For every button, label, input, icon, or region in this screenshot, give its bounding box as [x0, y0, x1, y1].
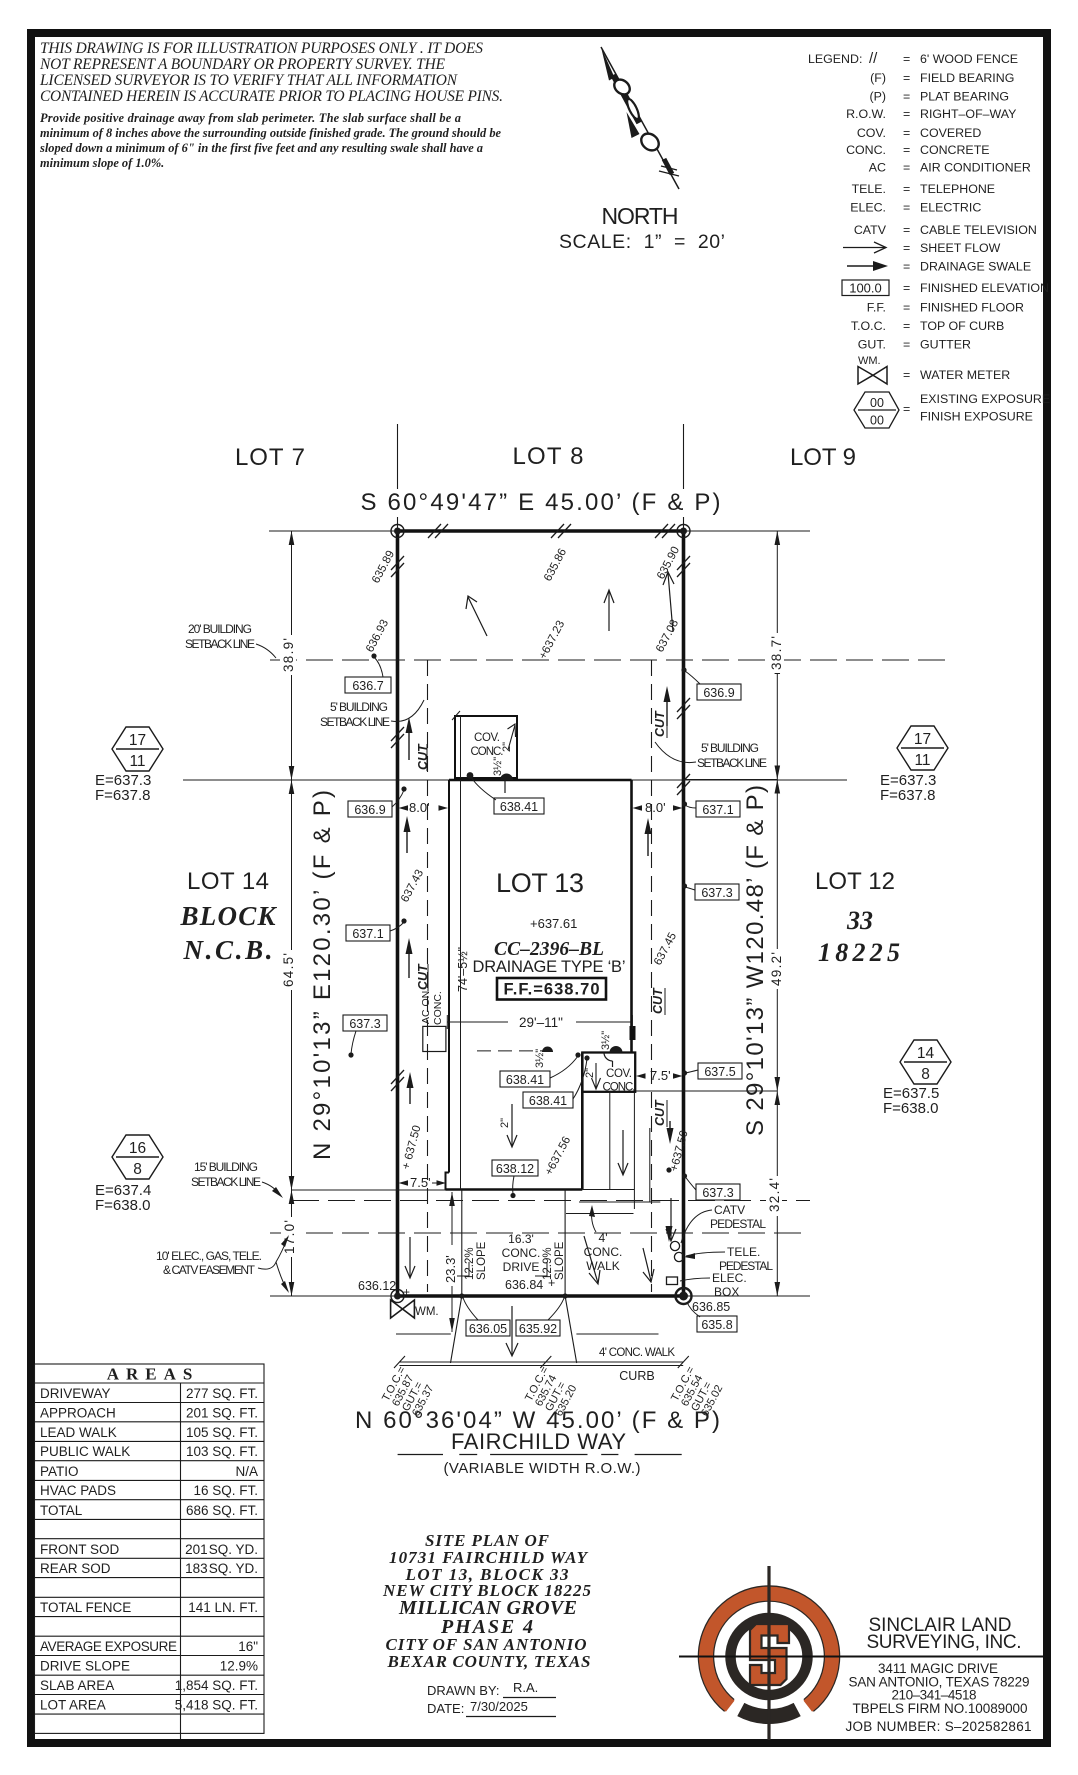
- svg-text:SETBACK LINE: SETBACK LINE: [320, 715, 390, 729]
- svg-text:DRIVEWAY: DRIVEWAY: [40, 1386, 111, 1401]
- svg-text:WM.: WM.: [415, 1306, 439, 1318]
- svg-text:CONC.: CONC.: [502, 1246, 541, 1260]
- svg-text:+637.61: +637.61: [530, 916, 577, 931]
- svg-text:1,854 SQ. FT.: 1,854 SQ. FT.: [175, 1678, 258, 1693]
- svg-text:F.F.=638.70: F.F.=638.70: [504, 981, 600, 999]
- svg-text:LOT 13: LOT 13: [496, 868, 584, 898]
- svg-text:COVERED: COVERED: [920, 126, 981, 140]
- svg-text:SLAB AREA: SLAB AREA: [40, 1678, 114, 1693]
- svg-text:=: =: [903, 319, 910, 333]
- svg-text:637.3: 637.3: [349, 1017, 380, 1031]
- svg-text:CONC.: CONC.: [432, 991, 444, 1025]
- svg-text:11: 11: [129, 753, 145, 770]
- svg-text:74'–5½": 74'–5½": [456, 947, 470, 992]
- svg-text:637.1: 637.1: [352, 927, 383, 941]
- svg-text:636.84: 636.84: [505, 1278, 543, 1292]
- svg-text:S 29°10'13” W120.48’ (F & P): S 29°10'13” W120.48’ (F & P): [742, 785, 769, 1136]
- svg-text:=: =: [903, 90, 910, 104]
- svg-text:AC ON: AC ON: [420, 991, 432, 1024]
- svg-text:00: 00: [870, 396, 884, 410]
- svg-text:=: =: [903, 260, 910, 274]
- svg-text:minimum slope of 1.0%.: minimum slope of 1.0%.: [40, 156, 164, 170]
- svg-text:16 SQ. FT.: 16 SQ. FT.: [193, 1483, 258, 1498]
- svg-text:CABLE TELEVISION: CABLE TELEVISION: [920, 223, 1037, 237]
- svg-text:CUT: CUT: [651, 987, 665, 1014]
- svg-text:277 SQ. FT.: 277 SQ. FT.: [186, 1386, 258, 1401]
- svg-text:N.C.B.: N.C.B.: [183, 935, 273, 965]
- svg-text:5' BUILDING: 5' BUILDING: [701, 741, 759, 755]
- svg-text:AC: AC: [869, 161, 886, 175]
- svg-text:& CATV EASEMENT: & CATV EASEMENT: [163, 1263, 256, 1277]
- svg-text:CONC.: CONC.: [584, 1245, 623, 1259]
- svg-text:8: 8: [921, 1066, 930, 1083]
- svg-text:=: =: [903, 161, 910, 175]
- svg-text:FINISH EXPOSURE: FINISH EXPOSURE: [920, 410, 1033, 424]
- svg-text:BLOCK: BLOCK: [180, 901, 278, 931]
- svg-text:100.0: 100.0: [849, 281, 882, 296]
- svg-text:LEGEND:: LEGEND:: [808, 52, 862, 66]
- svg-text:=: =: [903, 281, 910, 295]
- svg-text:EXISTING EXPOSURE: EXISTING EXPOSURE: [920, 392, 1050, 406]
- svg-text:T.O.C.: T.O.C.: [851, 319, 886, 333]
- svg-text:TOP OF CURB: TOP OF CURB: [920, 319, 1004, 333]
- svg-text:637.3: 637.3: [701, 886, 732, 900]
- svg-text:=: =: [903, 223, 910, 237]
- svg-text:SETBACK LINE: SETBACK LINE: [185, 637, 255, 651]
- svg-text:TOTAL: TOTAL: [40, 1503, 83, 1518]
- svg-text:636.85: 636.85: [692, 1300, 730, 1314]
- svg-text:F=637.8: F=637.8: [880, 787, 935, 804]
- svg-text:JOB NUMBER: S–202582861: JOB NUMBER: S–202582861: [846, 1719, 1032, 1734]
- svg-text:WALK: WALK: [586, 1259, 620, 1273]
- svg-text:17: 17: [129, 732, 146, 749]
- svg-text:636.05: 636.05: [469, 1322, 507, 1336]
- svg-text:F=638.0: F=638.0: [95, 1197, 150, 1214]
- svg-text:LOT 8: LOT 8: [513, 443, 584, 470]
- svg-text:GUT.: GUT.: [858, 338, 886, 352]
- svg-text:ELEC.: ELEC.: [712, 1271, 747, 1285]
- svg-text:NORTH: NORTH: [602, 203, 679, 229]
- svg-text:PUBLIC WALK: PUBLIC WALK: [40, 1444, 130, 1459]
- svg-text:COV.: COV.: [474, 732, 500, 744]
- svg-text:COV.: COV.: [857, 126, 886, 140]
- svg-text:AIR CONDITIONER: AIR CONDITIONER: [920, 161, 1031, 175]
- svg-text:ELECTRIC: ELECTRIC: [920, 201, 981, 215]
- svg-text:CATV: CATV: [854, 223, 887, 237]
- svg-text:11: 11: [914, 752, 930, 769]
- svg-text:BEXAR COUNTY, TEXAS: BEXAR COUNTY, TEXAS: [387, 1652, 591, 1671]
- svg-text:183 SQ. YD.: 183 SQ. YD.: [185, 1561, 258, 1576]
- svg-text:636.12: 636.12: [358, 1279, 396, 1293]
- svg-text:F=638.0: F=638.0: [883, 1100, 938, 1117]
- svg-text:F.F.: F.F.: [867, 301, 886, 315]
- svg-text:CURB: CURB: [619, 1369, 654, 1383]
- svg-text:FIELD BEARING: FIELD BEARING: [920, 71, 1014, 85]
- svg-text:201 SQ. FT.: 201 SQ. FT.: [186, 1405, 258, 1420]
- svg-text:=: =: [903, 201, 910, 215]
- svg-text:SHEET FLOW: SHEET FLOW: [920, 241, 1001, 255]
- svg-text:=: =: [903, 126, 910, 140]
- svg-text:8: 8: [133, 1161, 142, 1178]
- svg-text:CONC.: CONC.: [471, 746, 504, 758]
- svg-text:SCALE: 1” = 20’: SCALE: 1” = 20’: [559, 231, 725, 253]
- svg-text:638.41: 638.41: [500, 800, 538, 814]
- svg-text:S 60°49'47” E 45.00’ (F & P): S 60°49'47” E 45.00’ (F & P): [361, 489, 721, 516]
- svg-text:CUT: CUT: [653, 710, 667, 737]
- svg-text:=: =: [903, 143, 910, 157]
- svg-text:REAR SOD: REAR SOD: [40, 1561, 111, 1576]
- svg-text:(P): (P): [869, 90, 886, 104]
- svg-text:12.9%: 12.9%: [542, 1247, 554, 1280]
- svg-text:COV.: COV.: [606, 1068, 632, 1080]
- svg-text:16": 16": [238, 1639, 258, 1654]
- svg-text:2": 2": [499, 1118, 511, 1128]
- svg-text:636.7: 636.7: [352, 679, 383, 693]
- svg-text:635.8: 635.8: [701, 1318, 732, 1332]
- svg-text:SLOPE: SLOPE: [476, 1241, 488, 1280]
- svg-text:LICENSED SURVEYOR IS TO VERIFY: LICENSED SURVEYOR IS TO VERIFY THAT ALL …: [39, 72, 458, 89]
- svg-text:638.41: 638.41: [506, 1073, 544, 1087]
- svg-text:00: 00: [870, 414, 884, 428]
- svg-text:=: =: [903, 368, 910, 382]
- svg-text:DRIVE: DRIVE: [503, 1260, 540, 1274]
- svg-text:sloped down a minimum of 6" in: sloped down a minimum of 6" in the first…: [39, 141, 483, 155]
- svg-text:R.O.W.: R.O.W.: [846, 107, 886, 121]
- svg-text:15' BUILDING: 15' BUILDING: [194, 1160, 258, 1174]
- svg-text:=: =: [903, 52, 910, 66]
- svg-text:DRAINAGE TYPE ‘B’: DRAINAGE TYPE ‘B’: [473, 958, 626, 976]
- svg-text:637.3: 637.3: [702, 1186, 733, 1200]
- svg-text:FAIRCHILD WAY: FAIRCHILD WAY: [451, 1429, 626, 1454]
- svg-text:7.5': 7.5': [410, 1175, 431, 1190]
- svg-text:5' BUILDING: 5' BUILDING: [330, 700, 388, 714]
- svg-text:64.5': 64.5': [281, 953, 296, 987]
- svg-text:LOT 14: LOT 14: [187, 868, 269, 895]
- svg-text:105 SQ. FT.: 105 SQ. FT.: [186, 1425, 258, 1440]
- svg-text:SLOPE: SLOPE: [554, 1241, 566, 1280]
- svg-text:12.2%: 12.2%: [464, 1247, 476, 1280]
- svg-text:=: =: [903, 338, 910, 352]
- svg-text:636.9: 636.9: [703, 686, 734, 700]
- svg-text:103 SQ. FT.: 103 SQ. FT.: [186, 1444, 258, 1459]
- svg-text:APPROACH: APPROACH: [40, 1405, 116, 1420]
- svg-text:ELEC.: ELEC.: [850, 201, 886, 215]
- svg-text:10' ELEC., GAS, TELE.: 10' ELEC., GAS, TELE.: [156, 1249, 262, 1263]
- svg-text:32.4': 32.4': [767, 1178, 782, 1212]
- svg-text:638.12: 638.12: [496, 1162, 534, 1176]
- svg-text:NOT REPRESENT A BOUNDARY OR PR: NOT REPRESENT A BOUNDARY OR PROPERTY SUR…: [39, 56, 446, 73]
- svg-text:DRIVE SLOPE: DRIVE SLOPE: [40, 1659, 130, 1674]
- svg-text:6' WOOD FENCE: 6' WOOD FENCE: [920, 52, 1018, 66]
- svg-text:R.A.: R.A.: [513, 1680, 538, 1695]
- svg-text:WATER METER: WATER METER: [920, 368, 1010, 382]
- svg-text:=: =: [903, 301, 910, 315]
- svg-text:HVAC PADS: HVAC PADS: [40, 1483, 116, 1498]
- svg-text:Provide positive drainage away: Provide positive drainage away from slab…: [40, 111, 461, 125]
- svg-text:201 SQ. YD.: 201 SQ. YD.: [185, 1542, 258, 1557]
- svg-text:SETBACK LINE: SETBACK LINE: [191, 1175, 261, 1189]
- svg-text:23.3': 23.3': [443, 1255, 458, 1283]
- svg-text:8.0': 8.0': [645, 800, 666, 815]
- svg-text:TELE.: TELE.: [727, 1245, 760, 1259]
- svg-text:3½": 3½": [534, 1049, 546, 1068]
- svg-text:=: =: [903, 71, 910, 85]
- svg-text:CONCRETE: CONCRETE: [920, 143, 990, 157]
- svg-text:CONC.: CONC.: [603, 1082, 636, 1094]
- svg-text:CATV: CATV: [714, 1203, 745, 1217]
- svg-text:BOX: BOX: [714, 1285, 739, 1299]
- svg-text:WM.: WM.: [858, 355, 881, 367]
- svg-text:LOT 9: LOT 9: [790, 444, 856, 471]
- svg-text:FRONT SOD: FRONT SOD: [40, 1542, 120, 1557]
- svg-text:N/A: N/A: [235, 1464, 258, 1479]
- svg-text:LOT 12: LOT 12: [815, 868, 895, 895]
- svg-text:DATE:: DATE:: [427, 1701, 464, 1716]
- svg-text:4': 4': [599, 1231, 608, 1245]
- svg-text:636.9: 636.9: [354, 803, 385, 817]
- svg-text:PEDESTAL: PEDESTAL: [710, 1217, 766, 1231]
- svg-text:38.9': 38.9': [281, 638, 296, 672]
- svg-text:16: 16: [129, 1140, 146, 1157]
- svg-text:3½": 3½": [492, 757, 504, 776]
- svg-text:=: =: [903, 241, 910, 255]
- svg-text:=: =: [903, 107, 910, 121]
- svg-text:18225: 18225: [818, 938, 900, 967]
- svg-text:(F): (F): [870, 71, 886, 85]
- svg-text:17.0': 17.0': [282, 1220, 297, 1254]
- svg-text:CONTAINED HEREIN IS ACCURATE P: CONTAINED HEREIN IS ACCURATE PRIOR TO PL…: [40, 88, 503, 105]
- svg-text:38.7': 38.7': [769, 636, 784, 670]
- svg-text:3½": 3½": [600, 1031, 612, 1050]
- svg-text:SURVEYING, INC.: SURVEYING, INC.: [867, 1632, 1022, 1653]
- svg-text:49.2': 49.2': [769, 952, 784, 986]
- svg-text:20' BUILDING: 20' BUILDING: [188, 622, 252, 636]
- svg-text:PATIO: PATIO: [40, 1464, 79, 1479]
- svg-text:4' CONC. WALK: 4' CONC. WALK: [599, 1347, 675, 1359]
- svg-text:2": 2": [584, 1068, 596, 1078]
- svg-text:AREAS: AREAS: [107, 1365, 200, 1384]
- svg-text:TELEPHONE: TELEPHONE: [920, 182, 995, 196]
- svg-text:2": 2": [501, 742, 513, 752]
- svg-text:638.41: 638.41: [529, 1094, 567, 1108]
- svg-text:TBPELS FIRM NO.10089000: TBPELS FIRM NO.10089000: [853, 1701, 1028, 1716]
- svg-text:LEAD WALK: LEAD WALK: [40, 1425, 117, 1440]
- svg-text:12.9%: 12.9%: [220, 1659, 258, 1674]
- svg-text:CC–2396–BL: CC–2396–BL: [494, 939, 604, 960]
- svg-text:8.0': 8.0': [409, 800, 430, 815]
- svg-text:637.5: 637.5: [704, 1065, 735, 1079]
- svg-text:637.1: 637.1: [702, 803, 733, 817]
- svg-text:686 SQ. FT.: 686 SQ. FT.: [186, 1503, 258, 1518]
- svg-text:TOTAL FENCE: TOTAL FENCE: [40, 1600, 131, 1615]
- svg-text:FINISHED FLOOR: FINISHED FLOOR: [920, 301, 1024, 315]
- svg-text:CUT: CUT: [653, 1099, 667, 1126]
- svg-text:635.92: 635.92: [519, 1322, 557, 1336]
- svg-text:29'–11": 29'–11": [519, 1015, 563, 1030]
- svg-text:17: 17: [914, 731, 931, 748]
- svg-text:DRAINAGE SWALE: DRAINAGE SWALE: [920, 260, 1031, 274]
- svg-text:THIS DRAWING IS FOR ILLUSTRATI: THIS DRAWING IS FOR ILLUSTRATION PURPOSE…: [40, 40, 483, 57]
- svg-text:5,418 SQ. FT.: 5,418 SQ. FT.: [175, 1698, 258, 1713]
- svg-text:CONC.: CONC.: [846, 143, 886, 157]
- svg-text:141 LN. FT.: 141 LN. FT.: [188, 1600, 258, 1615]
- svg-text:16.3': 16.3': [508, 1232, 534, 1246]
- svg-text:14: 14: [917, 1045, 935, 1062]
- svg-text:=: =: [903, 402, 910, 416]
- svg-text:(VARIABLE WIDTH R.O.W.): (VARIABLE WIDTH R.O.W.): [444, 1460, 641, 1477]
- svg-text:RIGHT–OF–WAY: RIGHT–OF–WAY: [920, 107, 1016, 121]
- svg-text:7/30/2025: 7/30/2025: [470, 1699, 528, 1714]
- svg-text:minimum of 8 inches above the: minimum of 8 inches above the surroundin…: [40, 126, 502, 140]
- svg-text:LOT AREA: LOT AREA: [40, 1698, 106, 1713]
- svg-text:7.5': 7.5': [650, 1068, 671, 1083]
- svg-text:LOT 7: LOT 7: [235, 444, 305, 471]
- svg-text:SETBACK LINE: SETBACK LINE: [697, 756, 767, 770]
- svg-text:F=637.8: F=637.8: [95, 787, 150, 804]
- svg-text:=: =: [903, 182, 910, 196]
- svg-text:PLAT BEARING: PLAT BEARING: [920, 90, 1009, 104]
- svg-text:CUT: CUT: [416, 743, 430, 770]
- svg-text:+: +: [403, 1285, 410, 1299]
- svg-text:33: 33: [846, 906, 873, 935]
- svg-text://: //: [869, 50, 878, 67]
- svg-text:FINISHED ELEVATION: FINISHED ELEVATION: [920, 281, 1049, 295]
- svg-text:TELE.: TELE.: [852, 182, 886, 196]
- svg-text:DRAWN BY:: DRAWN BY:: [427, 1683, 499, 1698]
- svg-text:AVERAGE EXPOSURE: AVERAGE EXPOSURE: [40, 1639, 177, 1654]
- svg-text:GUTTER: GUTTER: [920, 338, 971, 352]
